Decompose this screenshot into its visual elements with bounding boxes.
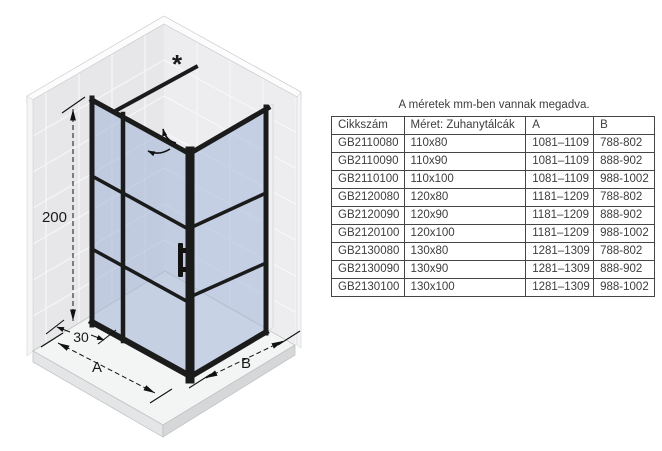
table-cell: 988-1002 [594, 225, 655, 243]
table-row: GB2130100130x1001281–1309988-1002 [332, 279, 655, 297]
header-cell: B [594, 117, 655, 135]
table-body: GB2110080110x801081–1109788-802GB2110090… [332, 135, 655, 297]
table-cell: 788-802 [594, 189, 655, 207]
height-dimension-label: 200 [42, 209, 67, 226]
table-cell: 110x80 [404, 135, 526, 153]
table-cell: 130x80 [404, 243, 526, 261]
size-table-panel: A méretek mm-ben vannak megadva. Cikkszá… [331, 98, 657, 297]
table-cell: 788-802 [594, 243, 655, 261]
table-cell: 888-902 [594, 207, 655, 225]
table-cell: 1281–1309 [526, 261, 594, 279]
table-cell: GB2110080 [332, 135, 405, 153]
table-row: GB2130080130x801281–1309788-802 [332, 243, 655, 261]
size-table: CikkszámMéret: ZuhanytálcákAB GB21100801… [331, 116, 655, 297]
table-cell: 120x100 [404, 225, 526, 243]
width-b-label: B [241, 355, 251, 372]
table-cell: 110x90 [404, 153, 526, 171]
table-cell: 1281–1309 [526, 243, 594, 261]
isometric-drawing: * 200 30 A B [0, 0, 330, 446]
table-cell: GB2120100 [332, 225, 405, 243]
table-cell: GB2120090 [332, 207, 405, 225]
table-row: GB2110100110x1001081–1109988-1002 [332, 171, 655, 189]
table-cell: 988-1002 [594, 279, 655, 297]
width-a-label: A [92, 359, 102, 376]
table-cell: 1181–1209 [526, 189, 594, 207]
header-cell: Cikkszám [332, 117, 405, 135]
table-row: GB2130090130x901281–1309888-902 [332, 261, 655, 279]
table-cell: 888-902 [594, 261, 655, 279]
table-cell: 130x100 [404, 279, 526, 297]
table-cell: 1081–1109 [526, 153, 594, 171]
table-cell: GB2110100 [332, 171, 405, 189]
side-glass-panel [189, 104, 273, 377]
table-row: GB2110090110x901081–1109888-902 [332, 153, 655, 171]
header-cell: A [526, 117, 594, 135]
table-cell: 1081–1109 [526, 171, 594, 189]
table-cell: GB2130100 [332, 279, 405, 297]
table-row: GB2120080120x801181–1209788-802 [332, 189, 655, 207]
table-caption: A méretek mm-ben vannak megadva. [331, 98, 657, 112]
table-cell: 1181–1209 [526, 225, 594, 243]
table-cell: 888-902 [594, 153, 655, 171]
table-cell: 1181–1209 [526, 207, 594, 225]
table-row: GB2110080110x801081–1109788-802 [332, 135, 655, 153]
table-cell: GB2130090 [332, 261, 405, 279]
shower-enclosure-diagram: * 200 30 A B [0, 0, 330, 446]
header-row: CikkszámMéret: ZuhanytálcákAB [332, 117, 655, 135]
table-cell: 1281–1309 [526, 279, 594, 297]
table-cell: GB2110090 [332, 153, 405, 171]
table-row: GB2120100120x1001181–1209988-1002 [332, 225, 655, 243]
table-cell: 788-802 [594, 135, 655, 153]
table-cell: 988-1002 [594, 171, 655, 189]
header-cell: Méret: Zuhanytálcák [404, 117, 526, 135]
table-cell: 1081–1109 [526, 135, 594, 153]
table-row: GB2120090120x901181–1209888-902 [332, 207, 655, 225]
fixed-width-label: 30 [73, 329, 89, 345]
table-cell: 130x90 [404, 261, 526, 279]
table-cell: GB2130080 [332, 243, 405, 261]
table-cell: 110x100 [404, 171, 526, 189]
table-cell: 120x80 [404, 189, 526, 207]
table-cell: GB2120080 [332, 189, 405, 207]
table-cell: 120x90 [404, 207, 526, 225]
asterisk-label: * [172, 49, 183, 79]
